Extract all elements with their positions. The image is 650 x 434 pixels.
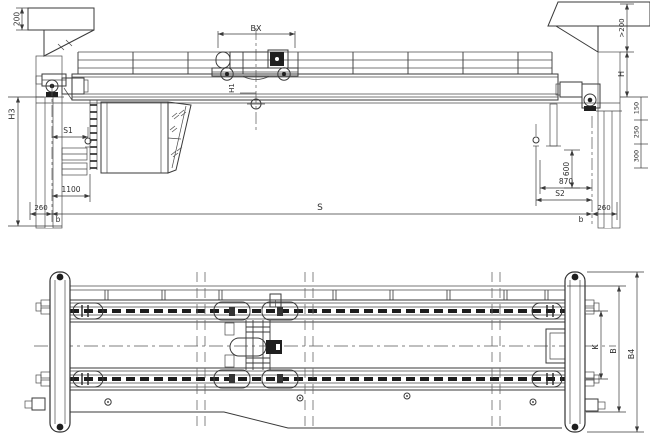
right-end-truck bbox=[546, 82, 600, 146]
dim-s1: S1 bbox=[52, 126, 91, 147]
dim-label-b-right: b bbox=[579, 215, 584, 224]
dim-label-stack-1: 150 bbox=[633, 102, 641, 114]
hoist-trolley bbox=[212, 28, 298, 132]
dim-1100: 1100 bbox=[52, 174, 90, 202]
dim-label-870: 870 bbox=[559, 177, 574, 186]
plan-view: K B B4 bbox=[25, 272, 644, 432]
dim-label-b: B bbox=[609, 348, 618, 354]
dim-label-600: 600 bbox=[562, 162, 571, 177]
dim-label-s1: S1 bbox=[63, 126, 73, 135]
bridge-girder bbox=[36, 74, 620, 103]
operator-cab bbox=[62, 100, 191, 175]
plan-walkway-railing bbox=[70, 286, 565, 300]
crane-technical-drawing: 200 H3 bbox=[0, 0, 650, 434]
dim-label-h: H bbox=[617, 71, 626, 77]
bridge-handrail bbox=[78, 52, 552, 74]
dim-right-group: 600 870 S2 bbox=[533, 124, 592, 206]
dim-label-stack-2: 250 bbox=[633, 126, 641, 138]
dim-label-200: 200 bbox=[13, 12, 22, 27]
cab-ladder bbox=[90, 100, 97, 170]
dim-bx: BX bbox=[218, 24, 295, 48]
plan-trolley bbox=[214, 294, 298, 388]
dim-label-b4: B4 bbox=[627, 349, 636, 360]
left-wall bbox=[28, 8, 94, 228]
dim-label-bx: BX bbox=[251, 24, 262, 33]
dim-label-b-left: b bbox=[56, 215, 61, 224]
plan-right-end-carriage bbox=[565, 272, 605, 432]
drawing-svg: 200 H3 bbox=[0, 0, 650, 434]
elevation-view: 200 H3 bbox=[8, 2, 650, 228]
plan-girder-bottom bbox=[70, 368, 565, 390]
dim-right-wall-chain: >200 H 150 250 300 bbox=[617, 4, 648, 168]
plan-break-lines bbox=[197, 272, 500, 432]
dim-label-260-right: 260 bbox=[597, 204, 610, 212]
dim-label-h3: H3 bbox=[8, 108, 17, 119]
hook-pulley: H1 bbox=[228, 83, 265, 109]
dim-label-h1: H1 bbox=[228, 83, 236, 93]
dim-label-stack-3: 300 bbox=[633, 150, 641, 162]
dim-label-1100: 1100 bbox=[61, 185, 80, 194]
plan-rail-end-clamps bbox=[73, 303, 562, 387]
dim-label-k: K bbox=[591, 344, 600, 350]
dim-label-s: S bbox=[317, 203, 323, 213]
dim-span-group: 260 S 260 b b bbox=[30, 84, 617, 224]
plan-service-platform bbox=[70, 393, 562, 428]
plan-girder-top bbox=[70, 300, 565, 322]
dim-label-gt200: >200 bbox=[618, 18, 626, 37]
dim-label-260-left: 260 bbox=[34, 204, 47, 212]
dim-label-s2: S2 bbox=[555, 189, 565, 198]
plan-left-end-carriage bbox=[25, 272, 70, 432]
dim-200: 200 bbox=[13, 8, 31, 30]
